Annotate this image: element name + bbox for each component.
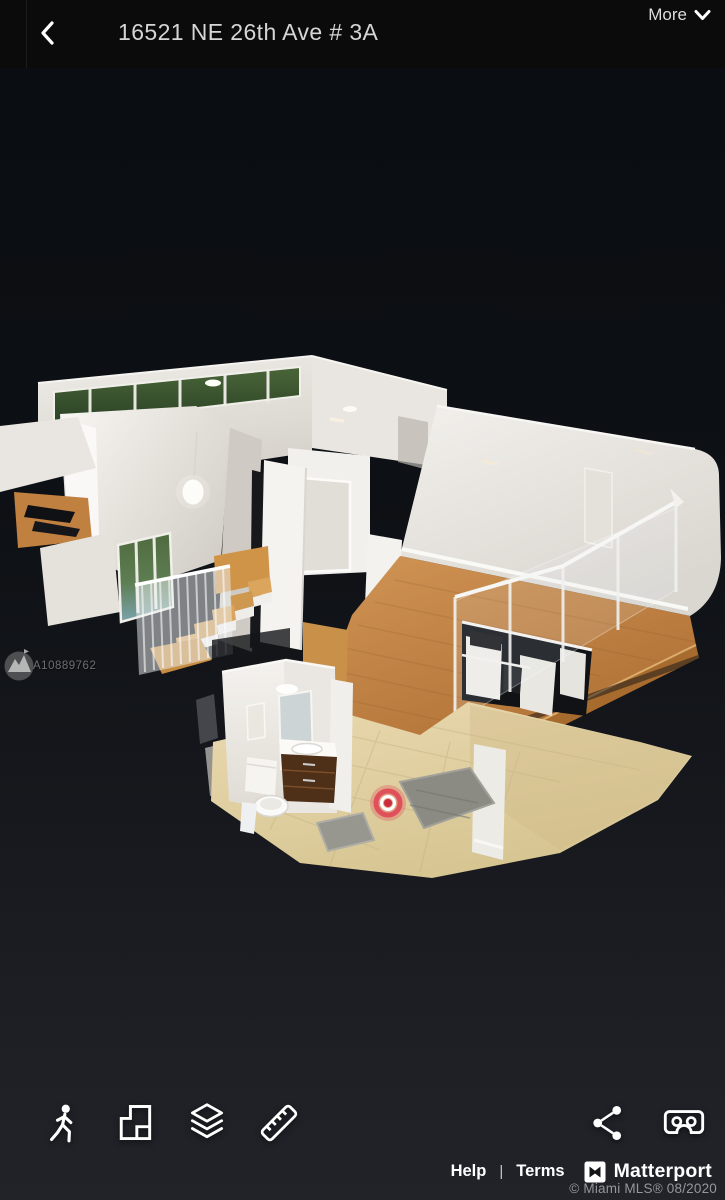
wall-sconce [330,419,344,421]
back-button[interactable] [30,16,64,50]
more-label: More [648,5,687,25]
terms-link[interactable]: Terms [516,1162,564,1181]
chevron-left-icon [40,21,54,45]
more-button[interactable]: More [648,5,711,25]
person-walking-icon [41,1100,85,1146]
floorplan-view-button[interactable] [112,1100,158,1146]
stacked-layers-icon [185,1100,229,1146]
position-marker[interactable] [370,785,406,821]
floor-selector-button[interactable] [184,1100,230,1146]
waste-bin [240,802,257,834]
dollhouse-model[interactable] [0,0,725,1200]
matterport-m-logo-icon [584,1161,606,1183]
ruler-icon [257,1100,301,1146]
pendant-light [182,479,204,505]
vr-mode-button[interactable] [661,1100,707,1146]
ceiling-light [343,406,357,412]
walkthrough-view-button[interactable] [40,1100,86,1146]
share-button[interactable] [585,1100,631,1146]
bathroom-sink [292,744,322,755]
top-bar: 16521 NE 26th Ave # 3A More [0,0,725,68]
matterport-brand[interactable]: Matterport [584,1160,712,1183]
ceiling-light [205,380,221,387]
page-title: 16521 NE 26th Ave # 3A [118,19,378,46]
vanity-light [276,684,298,694]
matterport-wordmark: Matterport [614,1160,712,1183]
floorplan-icon [113,1100,157,1146]
footer: Help | Terms Matterport [451,1160,712,1183]
app-window: A10889762 16521 NE 26th Ave # 3A More [0,0,725,1200]
help-link[interactable]: Help [451,1162,487,1181]
toilet-tank [245,757,277,796]
measure-tool-button[interactable] [256,1100,302,1146]
view-toolbar [40,1100,302,1146]
vr-goggles-icon [661,1102,707,1144]
copyright-text: © Miami MLS® 08/2020 [569,1181,717,1196]
vanity-cabinet [281,754,337,803]
chevron-down-icon [694,9,711,21]
share-nodes-icon [589,1102,627,1144]
viewport: A10889762 [0,68,725,1200]
upstairs-doorway [302,478,350,572]
footer-separator: | [499,1163,503,1180]
share-toolbar [585,1100,707,1146]
